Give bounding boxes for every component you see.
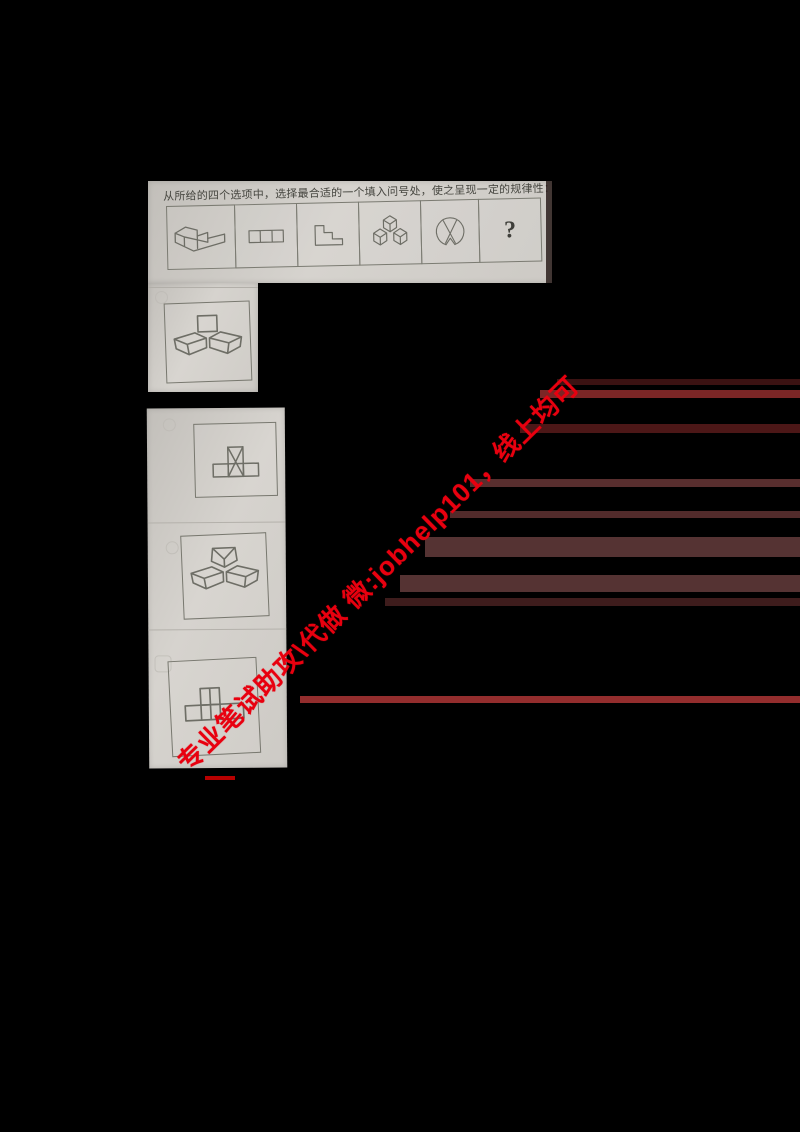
sequence-row: ? <box>166 197 542 269</box>
sequence-cell-3 <box>296 202 360 267</box>
option-a-box[interactable] <box>164 301 253 384</box>
jpeg-artifact-bar <box>300 696 800 703</box>
jpeg-artifact-bar <box>450 511 800 518</box>
staircase-2d-figure <box>298 204 358 265</box>
question-mark: ? <box>504 217 517 244</box>
three-squares-row-figure <box>236 205 296 266</box>
jpeg-artifact-bar <box>470 479 800 487</box>
sequence-cell-1 <box>166 204 236 270</box>
option-c-box[interactable] <box>180 532 269 620</box>
strip-separator <box>148 522 286 524</box>
sequence-cell-5 <box>420 199 480 264</box>
circle-with-cross-figure <box>422 201 478 262</box>
option-b-marker <box>163 418 176 431</box>
jpeg-artifact-bar <box>385 598 800 606</box>
option-a-figure <box>167 304 250 381</box>
option-b-box[interactable] <box>193 422 278 498</box>
sequence-cell-6: ? <box>478 197 542 262</box>
sequence-cell-4 <box>358 200 422 265</box>
jpeg-artifact-bar <box>400 575 800 592</box>
jpeg-artifact-bar <box>520 424 800 433</box>
paper-crease <box>148 287 258 288</box>
strip-separator <box>148 629 286 631</box>
photo-question-strip: 从所给的四个选项中，选择最合适的一个填入问号处，使之呈现一定的规律性： <box>148 181 552 283</box>
option-b-figure <box>196 425 275 495</box>
photo-option-a-strip <box>148 283 258 392</box>
sequence-cell-2 <box>234 203 298 268</box>
option-c-marker <box>166 541 179 554</box>
photo-edge-shadow <box>546 181 552 283</box>
jpeg-artifact-bar <box>425 537 800 557</box>
option-c-figure <box>183 536 266 615</box>
jpeg-artifact-bar <box>205 776 235 780</box>
exam-question-screenshot: { "question": { "instruction": "从所给的四个选项… <box>0 0 800 1132</box>
three-cubes-figure <box>360 202 420 263</box>
staircase-3d-figure <box>168 206 234 267</box>
jpeg-artifact-bar <box>557 379 800 385</box>
option-a-marker <box>155 291 168 304</box>
